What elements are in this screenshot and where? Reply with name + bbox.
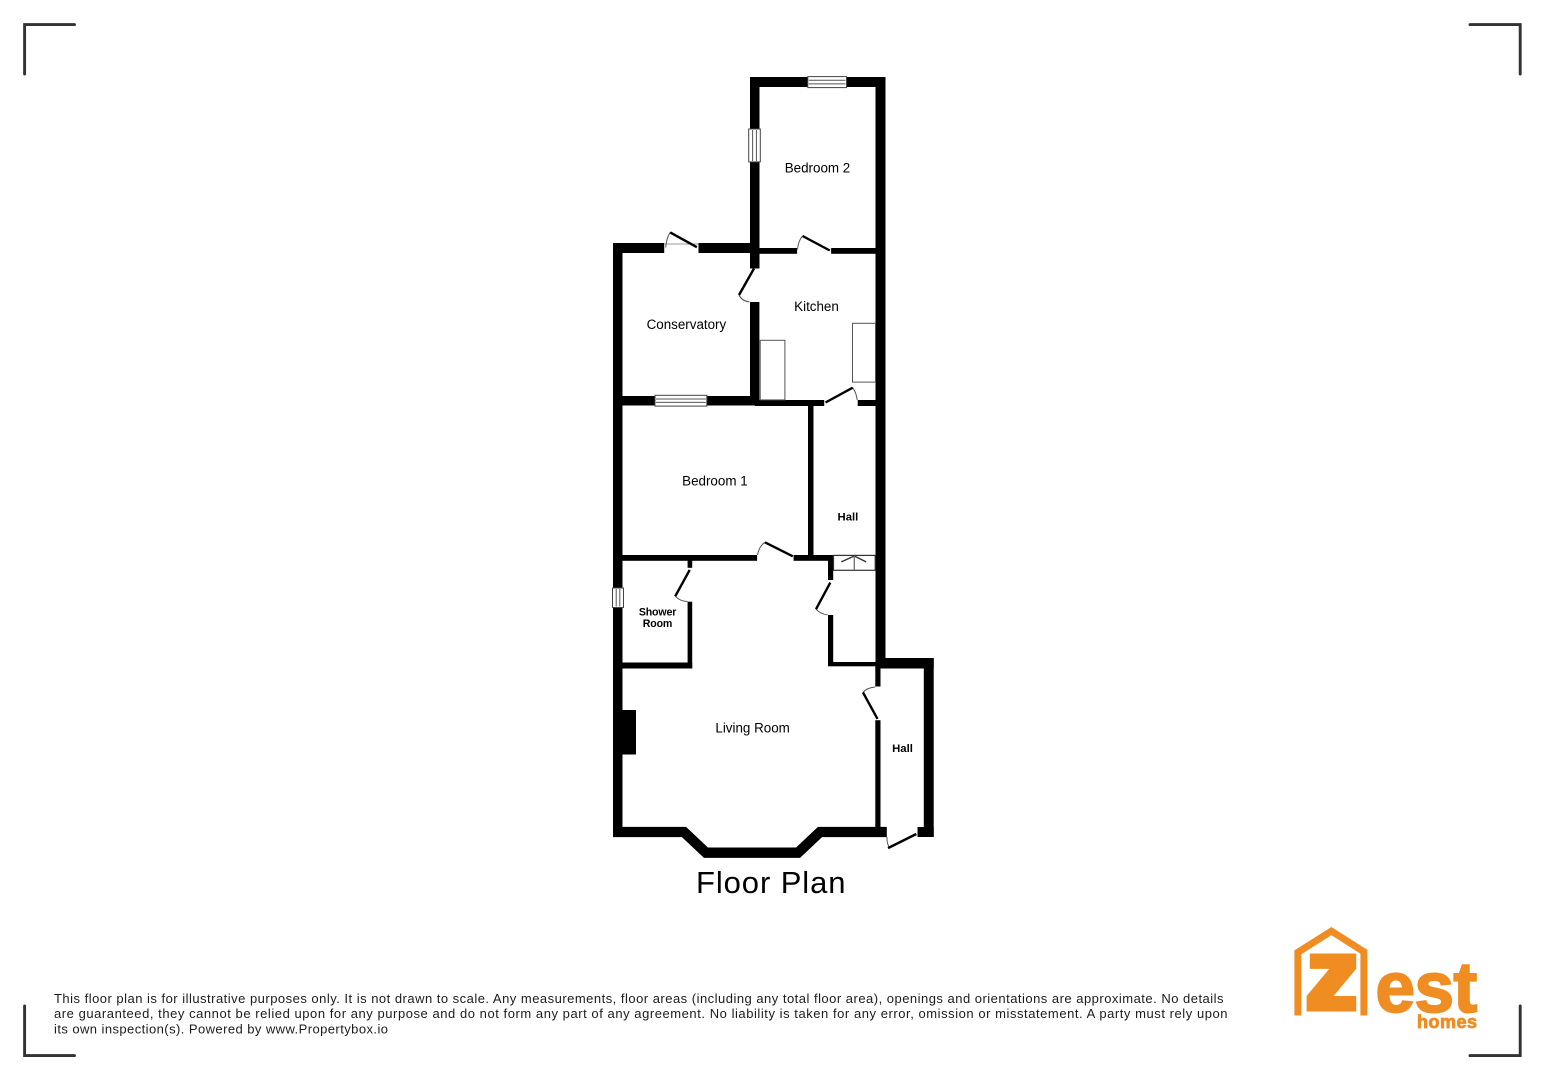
svg-text:Hall: Hall (892, 743, 913, 755)
svg-text:Bedroom 2: Bedroom 2 (785, 161, 851, 176)
svg-text:homes: homes (1417, 1012, 1477, 1032)
svg-text:are guaranteed, they cannot be: are guaranteed, they cannot be relied up… (54, 1006, 1227, 1021)
svg-text:Living Room: Living Room (715, 721, 789, 736)
svg-text:its own inspection(s). Powered: its own inspection(s). Powered by www.Pr… (54, 1021, 388, 1036)
svg-text:Bedroom 1: Bedroom 1 (682, 474, 748, 489)
svg-text:Hall: Hall (838, 511, 859, 523)
svg-text:Kitchen: Kitchen (794, 299, 839, 314)
svg-text:Conservatory: Conservatory (647, 317, 727, 332)
svg-text:Room: Room (643, 618, 672, 630)
svg-text:Floor Plan: Floor Plan (696, 865, 846, 900)
svg-text:This floor plan is for illustr: This floor plan is for illustrative purp… (54, 991, 1224, 1006)
svg-text:Shower: Shower (639, 606, 676, 618)
